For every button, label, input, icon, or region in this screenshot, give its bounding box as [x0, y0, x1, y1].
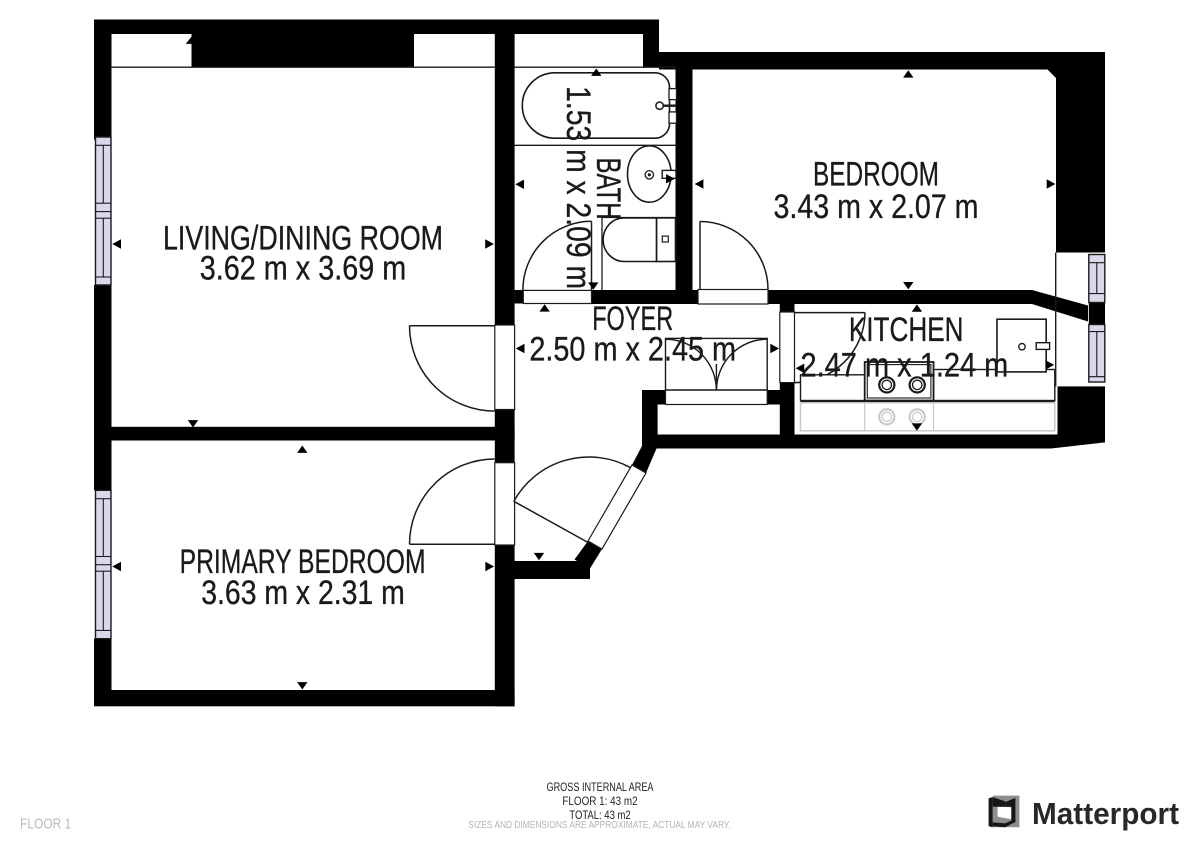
- svg-text:GROSS INTERNAL AREA: GROSS INTERNAL AREA: [547, 780, 655, 794]
- svg-text:FLOOR 1: 43 m2: FLOOR 1: 43 m2: [562, 794, 637, 808]
- svg-text:3.43 m x 2.07 m: 3.43 m x 2.07 m: [774, 188, 979, 226]
- svg-text:1.53 m x 2.09 m: 1.53 m x 2.09 m: [559, 86, 597, 289]
- svg-text:SIZES AND DIMENSIONS ARE APPRO: SIZES AND DIMENSIONS ARE APPROXIMATE, AC…: [468, 820, 730, 831]
- svg-text:3.63 m x 2.31 m: 3.63 m x 2.31 m: [201, 574, 405, 612]
- svg-text:FLOOR 1: FLOOR 1: [20, 817, 71, 833]
- svg-text:2.50 m x 2.45 m: 2.50 m x 2.45 m: [529, 331, 736, 369]
- svg-text:3.62 m x 3.69 m: 3.62 m x 3.69 m: [200, 250, 407, 288]
- svg-text:Matterport: Matterport: [1032, 796, 1179, 831]
- svg-text:KITCHEN: KITCHEN: [849, 311, 964, 349]
- svg-text:2.47 m x 1.24 m: 2.47 m x 1.24 m: [801, 347, 1009, 385]
